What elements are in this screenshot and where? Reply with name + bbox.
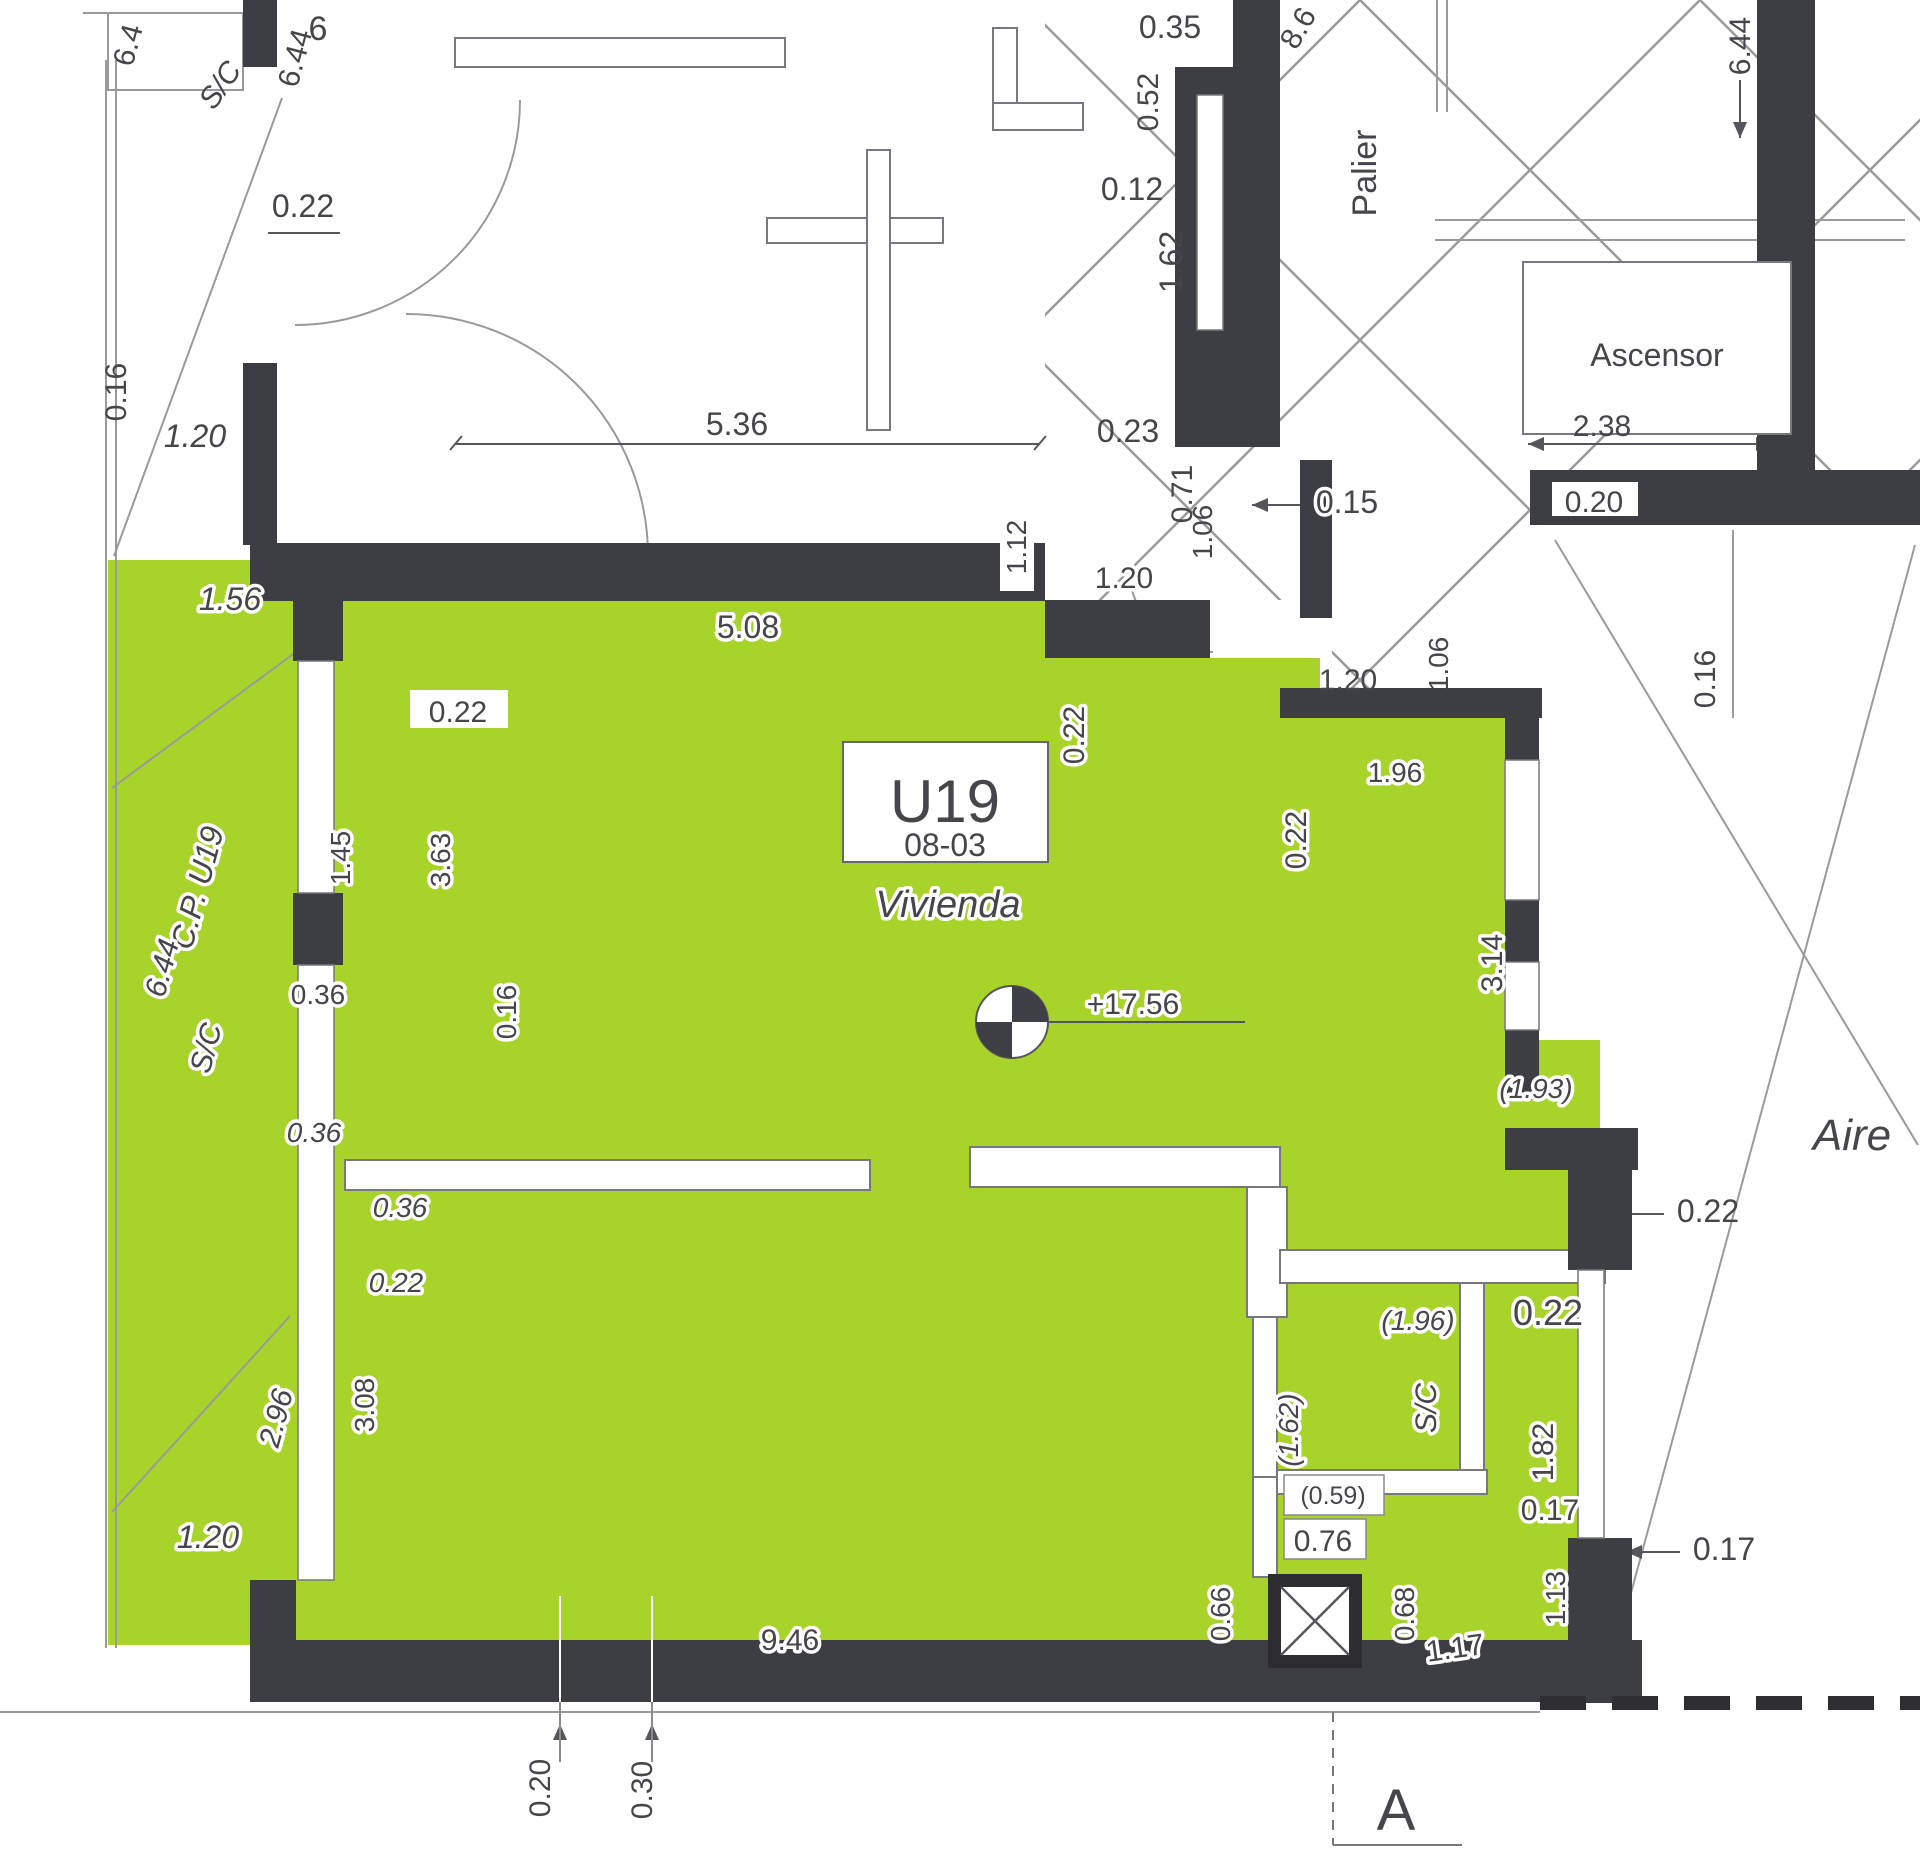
dim-193: (1.93) — [1499, 1073, 1572, 1104]
wall-win-stub-1 — [1505, 715, 1539, 760]
dim-113: 1.13 — [1540, 1571, 1571, 1626]
dim-120-corridor-1: 1.20 — [1095, 562, 1153, 595]
bath-wall-v — [1460, 1283, 1484, 1473]
partition-upper-1 — [455, 38, 785, 67]
dim-022-top-left: 0.22 — [272, 188, 334, 224]
dim-508: 5.08 — [717, 609, 779, 645]
door-arc-2 — [406, 314, 648, 556]
room-sc-bath: S/C — [1410, 1383, 1443, 1433]
interior-wall-c — [1280, 1250, 1605, 1283]
dim-022-mid: 0.22 — [369, 1267, 424, 1298]
wall-entry — [1045, 600, 1210, 658]
dim-106-b: 1.06 — [1423, 637, 1454, 692]
section-marker-label: A — [1377, 1778, 1416, 1843]
interior-slot-2 — [1253, 1477, 1277, 1577]
wall-top — [250, 543, 1045, 601]
dim-238: 2.38 — [1573, 410, 1631, 443]
dim-156: 1.56 — [199, 581, 261, 617]
dim-017-b: 0.17 — [1693, 1531, 1755, 1567]
partition-upper-t-stem — [867, 150, 890, 430]
dim-120-left-1: 1.20 — [164, 418, 226, 454]
dim-052: 0.52 — [1132, 73, 1165, 131]
dim-112: 1.12 — [1001, 520, 1032, 575]
dim-363: 3.63 — [425, 833, 456, 888]
dim-035: 0.35 — [1139, 9, 1201, 45]
dim-012: 0.12 — [1101, 171, 1163, 207]
interior-wall-a — [345, 1160, 870, 1190]
unit-type: Vivienda — [875, 884, 1020, 926]
dim-066: 0.66 — [1205, 1587, 1236, 1642]
dim-182: 1.82 — [1527, 1423, 1560, 1481]
wall-divider-stub-1 — [293, 601, 343, 661]
unit-level-mark: +17.56 — [1087, 988, 1180, 1021]
dim-016-left: 0.16 — [100, 363, 133, 421]
window-divider-2 — [298, 965, 334, 1580]
dim-106-a: 1.06 — [1187, 505, 1218, 560]
dim-023: 0.23 — [1097, 413, 1159, 449]
window-right-1 — [1505, 760, 1539, 900]
dim-644-right: 6.44 — [1724, 17, 1757, 75]
door-niche — [1197, 95, 1223, 330]
dim-162-paren: (1.62) — [1273, 1393, 1304, 1466]
dim-644-tl-b: 6.44 — [272, 26, 319, 91]
wall-tl-stub-1 — [243, 0, 277, 67]
dim-059: (0.59) — [1300, 1482, 1365, 1510]
dim-196-b: (1.96) — [1381, 1305, 1454, 1336]
dim-068: 0.68 — [1389, 1587, 1420, 1642]
dim-946: 9.46 — [761, 1624, 819, 1657]
dim-020-right: 0.20 — [1565, 486, 1623, 519]
interior-wall-b — [970, 1147, 1280, 1187]
unit-code: 08-03 — [904, 827, 986, 863]
partition-upper-t-bar — [767, 218, 943, 243]
dim-022-green: 0.22 — [429, 696, 487, 729]
section-lines — [1333, 1703, 1920, 1845]
dim-022-entry: 0.22 — [1058, 706, 1091, 764]
room-ascensor: Ascensor — [1590, 337, 1724, 373]
room-sc-top-left: S/C — [193, 55, 249, 115]
dim-162-v: 1.62 — [1153, 231, 1189, 293]
window-right-2 — [1505, 962, 1539, 1030]
aire-diagonal-1 — [1555, 540, 1918, 1145]
dim-314: 3.14 — [1476, 934, 1509, 992]
dim-036-c: 0.36 — [373, 1192, 428, 1223]
wall-tl-stub-2 — [243, 363, 277, 545]
unit-label: U19 — [890, 768, 1000, 835]
dim-022-neck: 0.22 — [1280, 811, 1313, 869]
dim-196-a: 1.96 — [1368, 757, 1423, 788]
dim-536: 5.36 — [706, 406, 768, 442]
dim-076: 0.76 — [1294, 1525, 1352, 1558]
dim-015: 0.15 — [1316, 484, 1378, 520]
dim-036-a: 0.36 — [291, 979, 346, 1010]
dim-036-b: 0.36 — [287, 1117, 342, 1148]
dim-308: 3.08 — [349, 1378, 380, 1433]
duct-shaft — [1268, 1574, 1362, 1668]
wall-col-top — [1233, 0, 1280, 67]
wall-right-low-a — [1568, 1128, 1632, 1270]
level-marker — [976, 986, 1048, 1058]
dim-120-bottom-left: 1.20 — [177, 1519, 239, 1555]
room-palier: Palier — [1346, 130, 1384, 217]
floor-plan-page: 6 6.4 S/C 6.44 0.22 0.16 1.20 1.56 5.36 … — [0, 0, 1920, 1859]
dim-644-tl-a: 6.4 — [107, 21, 150, 70]
dim-022-right-2: 0.22 — [1513, 1292, 1583, 1333]
wall-divider-stub-2 — [293, 893, 343, 965]
dim-022-right-arrow: 0.22 — [1677, 1193, 1739, 1229]
room-aire: Aire — [1810, 1111, 1891, 1160]
dim-020-bottom: 0.20 — [524, 1759, 557, 1817]
dim-016-mid: 0.16 — [491, 985, 522, 1040]
wall-col-main — [1175, 67, 1280, 447]
partition-upper-l-bar — [993, 103, 1083, 130]
floor-plan-canvas: 6 6.4 S/C 6.44 0.22 0.16 1.20 1.56 5.36 … — [0, 0, 1920, 1859]
dim-030-bottom: 0.30 — [626, 1761, 659, 1819]
dim-016-right: 0.16 — [1689, 650, 1722, 708]
wall-win-stub-2 — [1505, 900, 1539, 962]
dim-145: 1.45 — [325, 831, 356, 886]
dim-120-corridor-2: 1.20 — [1319, 664, 1377, 697]
dim-017-a: 0.17 — [1521, 1494, 1579, 1527]
